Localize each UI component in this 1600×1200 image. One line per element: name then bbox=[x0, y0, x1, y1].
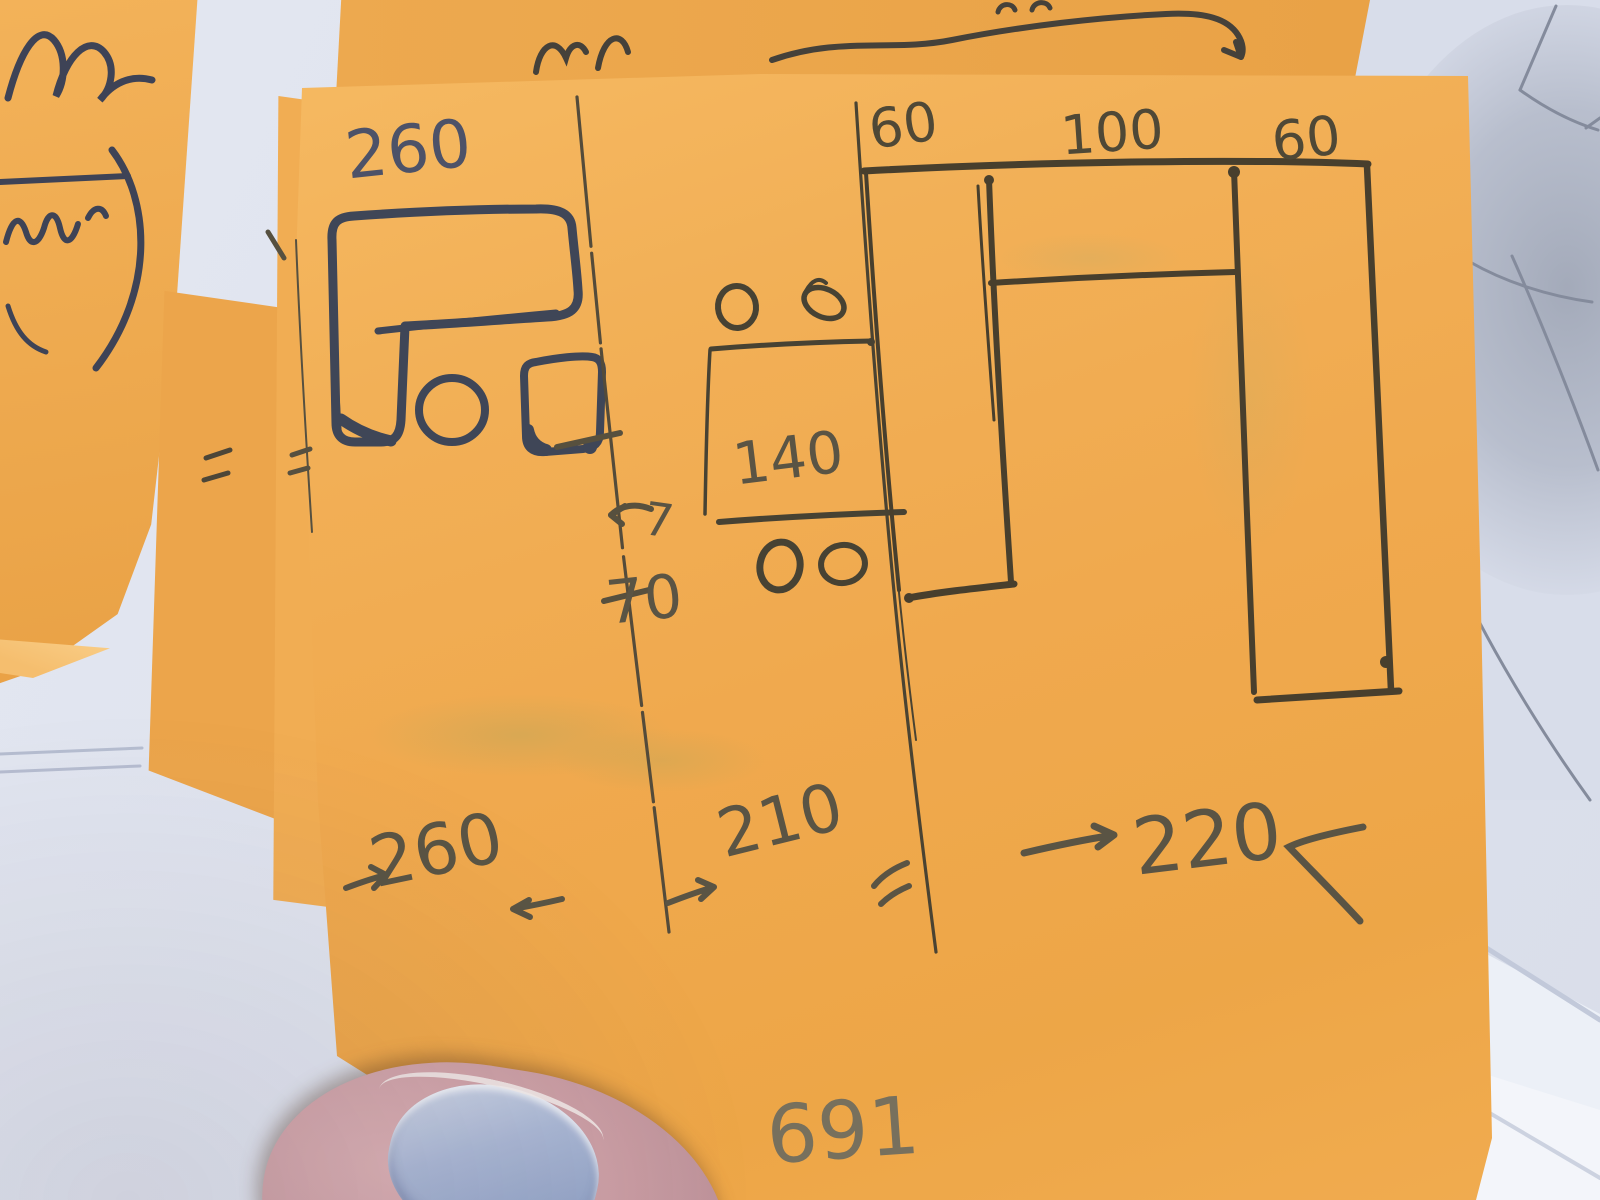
photo-sticky-note-sketch: 260 60 100 60 140 7 70 260 210 220 691 bbox=[0, 0, 1600, 1200]
thumb bbox=[0, 0, 1600, 1200]
